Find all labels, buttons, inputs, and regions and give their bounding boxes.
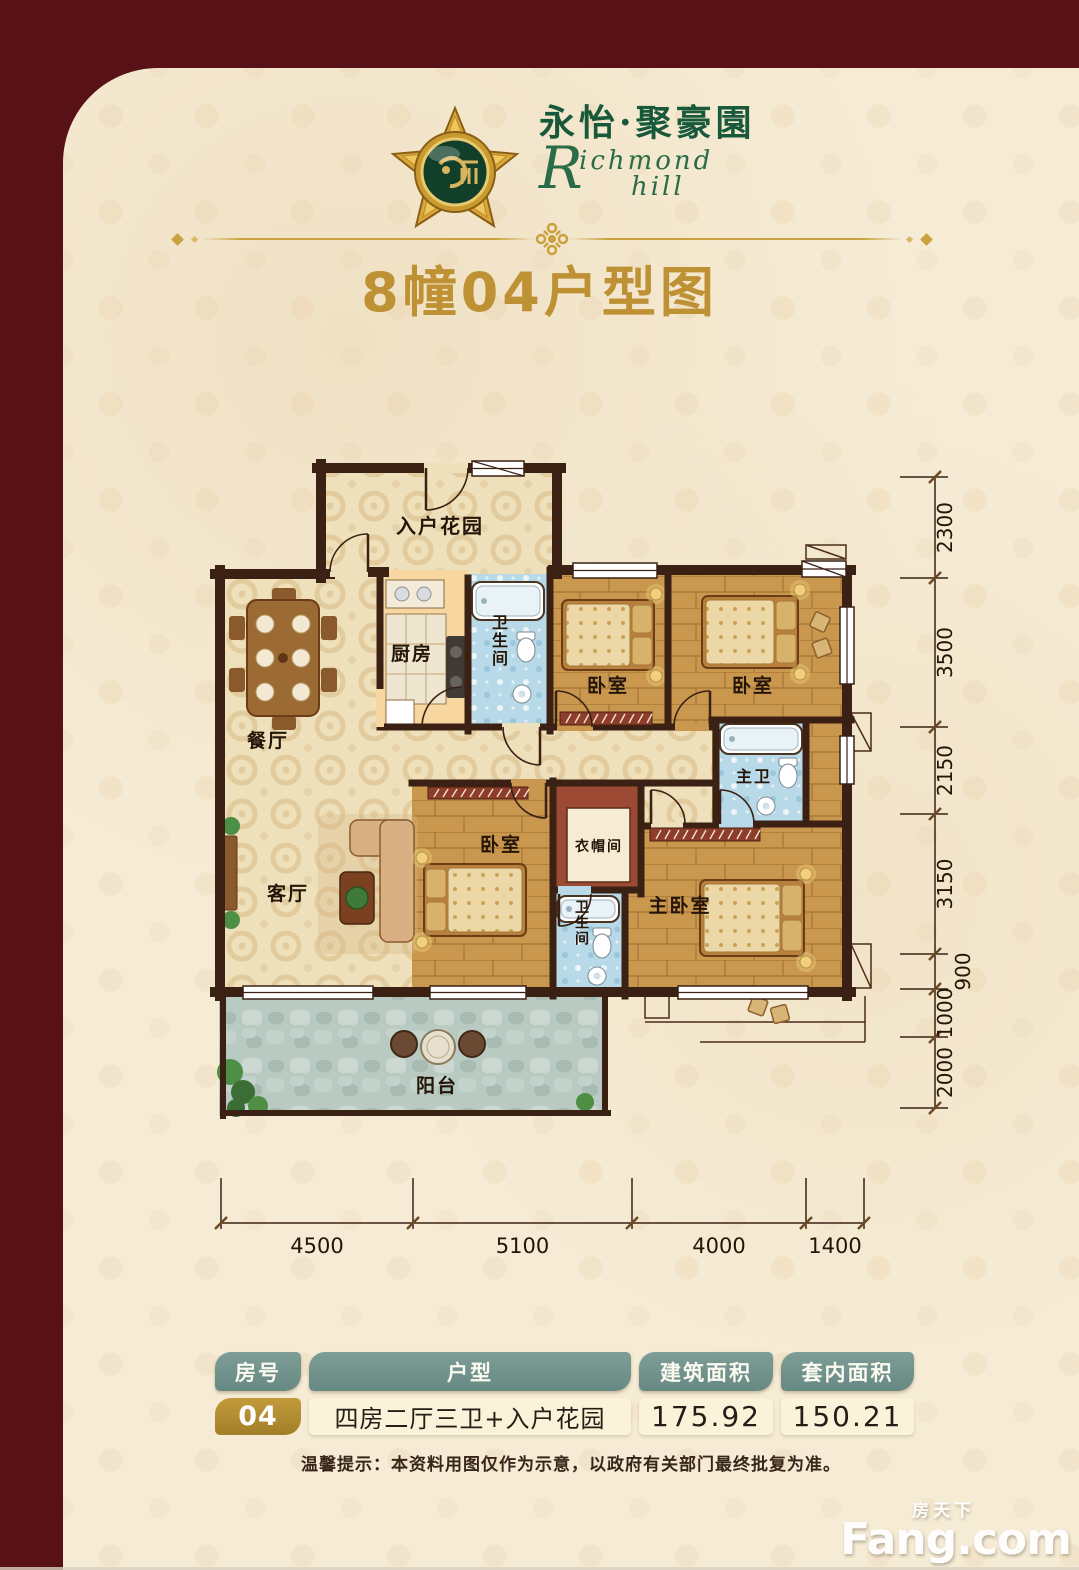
divider-line — [569, 238, 902, 240]
room-label-master-bedroom: 主卧室 — [648, 894, 711, 917]
bed — [562, 584, 666, 686]
dim-bottom-2: 4000 — [692, 1234, 745, 1258]
fang-watermark: 房天下 Fang.com — [840, 1503, 1071, 1562]
room-label-cloakroom: 衣帽间 — [575, 838, 623, 855]
room-label-living-room: 客厅 — [267, 882, 309, 905]
dim-bottom-3: 1400 — [808, 1234, 861, 1258]
room-label-entry-garden: 入户花园 — [396, 514, 484, 538]
dim-right-0: 2300 — [933, 502, 957, 553]
divider-line — [202, 238, 535, 240]
brand-text: 永怡·聚豪園 R ichmond hill — [539, 104, 756, 208]
wardrobe — [560, 712, 652, 725]
cell-gross-area: 175.92 — [639, 1398, 773, 1435]
disclaimer-note: 温馨提示：本资料用图仅作为示意，以政府有关部门最终批复为准。 — [63, 1450, 1079, 1475]
spec-table-data-row: 04 四房二厅三卫+入户花园 175.92 150.21 — [215, 1398, 915, 1435]
room-label-kitchen: 厨房 — [391, 642, 433, 665]
dim-right-3: 3150 — [933, 859, 957, 910]
brand-logo: 永怡·聚豪園 R ichmond hill — [388, 104, 756, 239]
window — [840, 607, 854, 684]
room-label-bedroom-2: 卧室 — [732, 674, 774, 697]
bed — [702, 580, 810, 684]
dim-right-5: 1000 — [933, 988, 957, 1039]
page-title: 8幢04户型图 — [0, 248, 1079, 327]
divider-diamond-icon — [906, 235, 913, 242]
spec-table-header-row: 房号 户型 建筑面积 套内面积 — [215, 1352, 915, 1391]
window — [243, 986, 373, 999]
header-inner-area: 套内面积 — [781, 1352, 914, 1391]
window — [573, 563, 657, 578]
cell-inner-area: 150.21 — [781, 1398, 914, 1435]
divider-diamond-icon — [920, 233, 933, 246]
dim-right-4: 900 — [951, 952, 975, 990]
dim-right-2: 2150 — [933, 745, 957, 796]
brand-en-part2: hill — [631, 172, 685, 202]
cell-room-no: 04 — [215, 1398, 301, 1435]
floor-plan: 入户花园厨房卫生间卧室卧室餐厅主卫卧室衣帽间客厅卫生间主卧室阳台23003500… — [185, 425, 990, 1270]
header-gross-area: 建筑面积 — [639, 1352, 773, 1391]
brand-name-en: R ichmond hill — [539, 146, 756, 208]
bed — [412, 848, 526, 952]
poster-canvas: 永怡·聚豪園 R ichmond hill 8幢04户型图 入户花园厨房卫生间卧… — [0, 0, 1079, 1570]
cell-layout: 四房二厅三卫+入户花园 — [309, 1398, 631, 1435]
room-label-bath-2: 卫生间 — [575, 900, 589, 947]
dim-lines-bottom — [215, 1178, 870, 1229]
dim-right-1: 3500 — [933, 627, 957, 678]
header-room-no: 房号 — [215, 1352, 301, 1391]
dim-bottom-0: 4500 — [290, 1234, 343, 1258]
spec-table: 房号 户型 建筑面积 套内面积 04 四房二厅三卫+入户花园 175.92 15… — [215, 1352, 915, 1435]
header-layout: 户型 — [309, 1352, 631, 1391]
brand-initial: R — [539, 134, 583, 202]
bed — [700, 864, 816, 972]
window — [802, 561, 846, 577]
dim-right-6: 2000 — [933, 1047, 957, 1098]
divider-diamond-icon — [191, 235, 198, 242]
dim-bottom-1: 5100 — [496, 1234, 549, 1258]
room-label-master-bath: 主卫 — [736, 767, 772, 786]
watermark-en: Fang.com — [840, 1518, 1071, 1562]
room-label-bedroom-3: 卧室 — [480, 833, 522, 856]
room-label-bath-1: 卫生间 — [492, 613, 508, 668]
room-label-dining-room: 餐厅 — [247, 729, 289, 752]
bathtub — [720, 724, 802, 754]
wardrobe — [650, 828, 760, 841]
toilet — [517, 632, 535, 662]
window — [840, 736, 854, 784]
toilet — [593, 928, 611, 958]
window — [472, 461, 524, 476]
divider-diamond-icon — [171, 233, 184, 246]
brand-star-medal-icon — [388, 104, 523, 239]
window — [678, 986, 808, 999]
window — [430, 986, 526, 999]
floor-plan-svg: 入户花园厨房卫生间卧室卧室餐厅主卫卧室衣帽间客厅卫生间主卧室阳台23003500… — [185, 425, 990, 1270]
toilet — [779, 758, 797, 788]
room-label-balcony: 阳台 — [416, 1074, 458, 1097]
room-label-bedroom-1: 卧室 — [587, 674, 629, 697]
